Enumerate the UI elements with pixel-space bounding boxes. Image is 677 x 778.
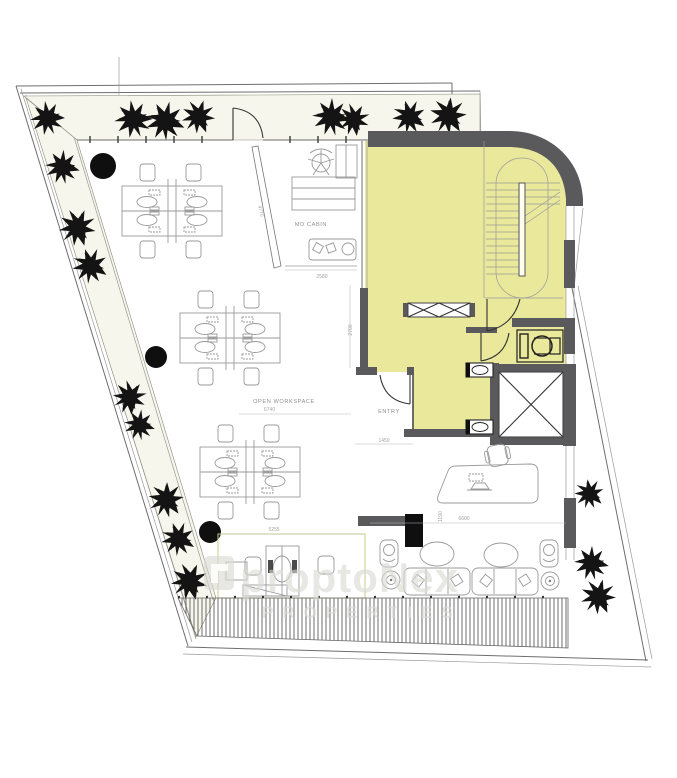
workstation-cluster-1 [122, 164, 222, 258]
watermark-logo-icon [204, 556, 234, 590]
dim-md-cabin-wall: 4770 [256, 205, 264, 217]
tree-icon [570, 541, 614, 585]
reception-monitor-icon [467, 474, 492, 490]
dim-entry-width: 1450 [378, 438, 389, 444]
side-table-right [541, 572, 559, 590]
duct-box [403, 303, 475, 317]
open-workspace-label: OPEN WORKSPACE [253, 399, 315, 405]
sofa-right [472, 568, 538, 595]
wash-basin-lower [466, 420, 493, 434]
square-column [405, 514, 423, 547]
elevator [490, 363, 566, 445]
entry-door [380, 375, 410, 404]
reception-desk [438, 464, 538, 503]
floor-plan-canvas: MD CABIN OPEN WORKSPACE ENTRY 2580 4770 … [0, 0, 677, 778]
dim-core-depth: 2700 [348, 324, 354, 335]
stair-spine-wall [519, 183, 525, 276]
armchair-right [540, 540, 558, 567]
tree-icon [572, 570, 626, 624]
dim-workspace-width: 6740 [264, 407, 275, 413]
dim-lounge-depth: 1190 [438, 511, 444, 522]
executive-chair [308, 149, 334, 175]
dim-workzone-width: 5255 [268, 527, 279, 533]
md-desk [292, 177, 355, 210]
round-column [90, 153, 116, 179]
md-sofa [309, 239, 356, 260]
round-column [145, 346, 167, 368]
workstation-cluster-3 [200, 425, 300, 519]
left-planter [26, 98, 216, 637]
md-cabinet [336, 145, 357, 178]
md-cabin-label: MD CABIN [295, 222, 327, 228]
watermark-tagline: PROPERTIES [262, 603, 462, 622]
wash-basin-upper [466, 363, 493, 377]
reception [438, 443, 538, 503]
md-cabin-furniture [292, 145, 357, 260]
entry-label: ENTRY [378, 409, 400, 415]
watermark-brand: proptoNex [240, 554, 459, 601]
dim-md-cabin-width: 2580 [316, 274, 327, 280]
workstation-cluster-2 [180, 291, 280, 385]
coffee-table-right [484, 543, 518, 567]
dim-lounge-width: 6600 [458, 516, 469, 522]
floor-plan-drawing: MD CABIN OPEN WORKSPACE ENTRY 2580 4770 … [0, 0, 677, 778]
